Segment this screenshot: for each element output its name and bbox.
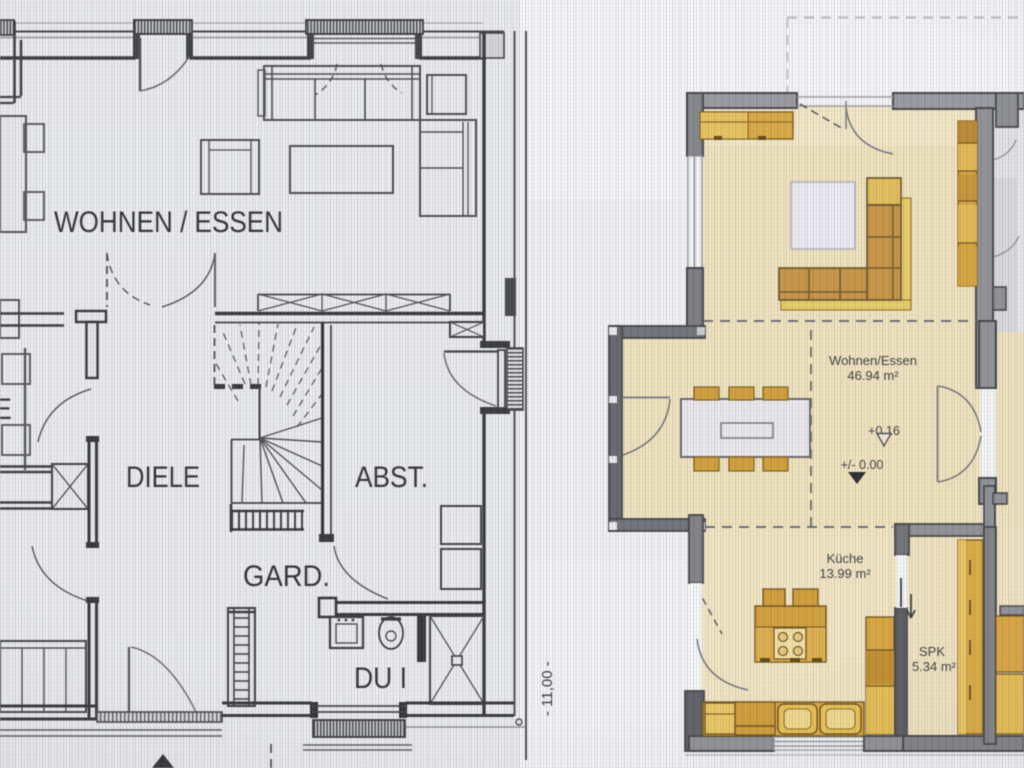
svg-text:DU I: DU I [354, 662, 407, 695]
svg-text:- 11,00 -: - 11,00 - [539, 661, 556, 716]
svg-text:SPK: SPK [919, 644, 945, 659]
svg-text:Wohnen/Essen: Wohnen/Essen [829, 353, 917, 368]
svg-text:WOHNEN / ESSEN: WOHNEN / ESSEN [54, 206, 283, 239]
svg-text:E: E [0, 393, 12, 426]
svg-text:+/- 0.00: +/- 0.00 [841, 458, 884, 472]
svg-text:Küche: Küche [827, 551, 864, 566]
svg-text:GARD.: GARD. [243, 560, 330, 593]
svg-text:13.99 m²: 13.99 m² [819, 566, 871, 581]
svg-text:5.34 m²: 5.34 m² [912, 659, 957, 674]
svg-text:46.94 m²: 46.94 m² [847, 368, 899, 383]
svg-text:ABST.: ABST. [355, 461, 428, 494]
svg-text:DIELE: DIELE [126, 461, 200, 494]
